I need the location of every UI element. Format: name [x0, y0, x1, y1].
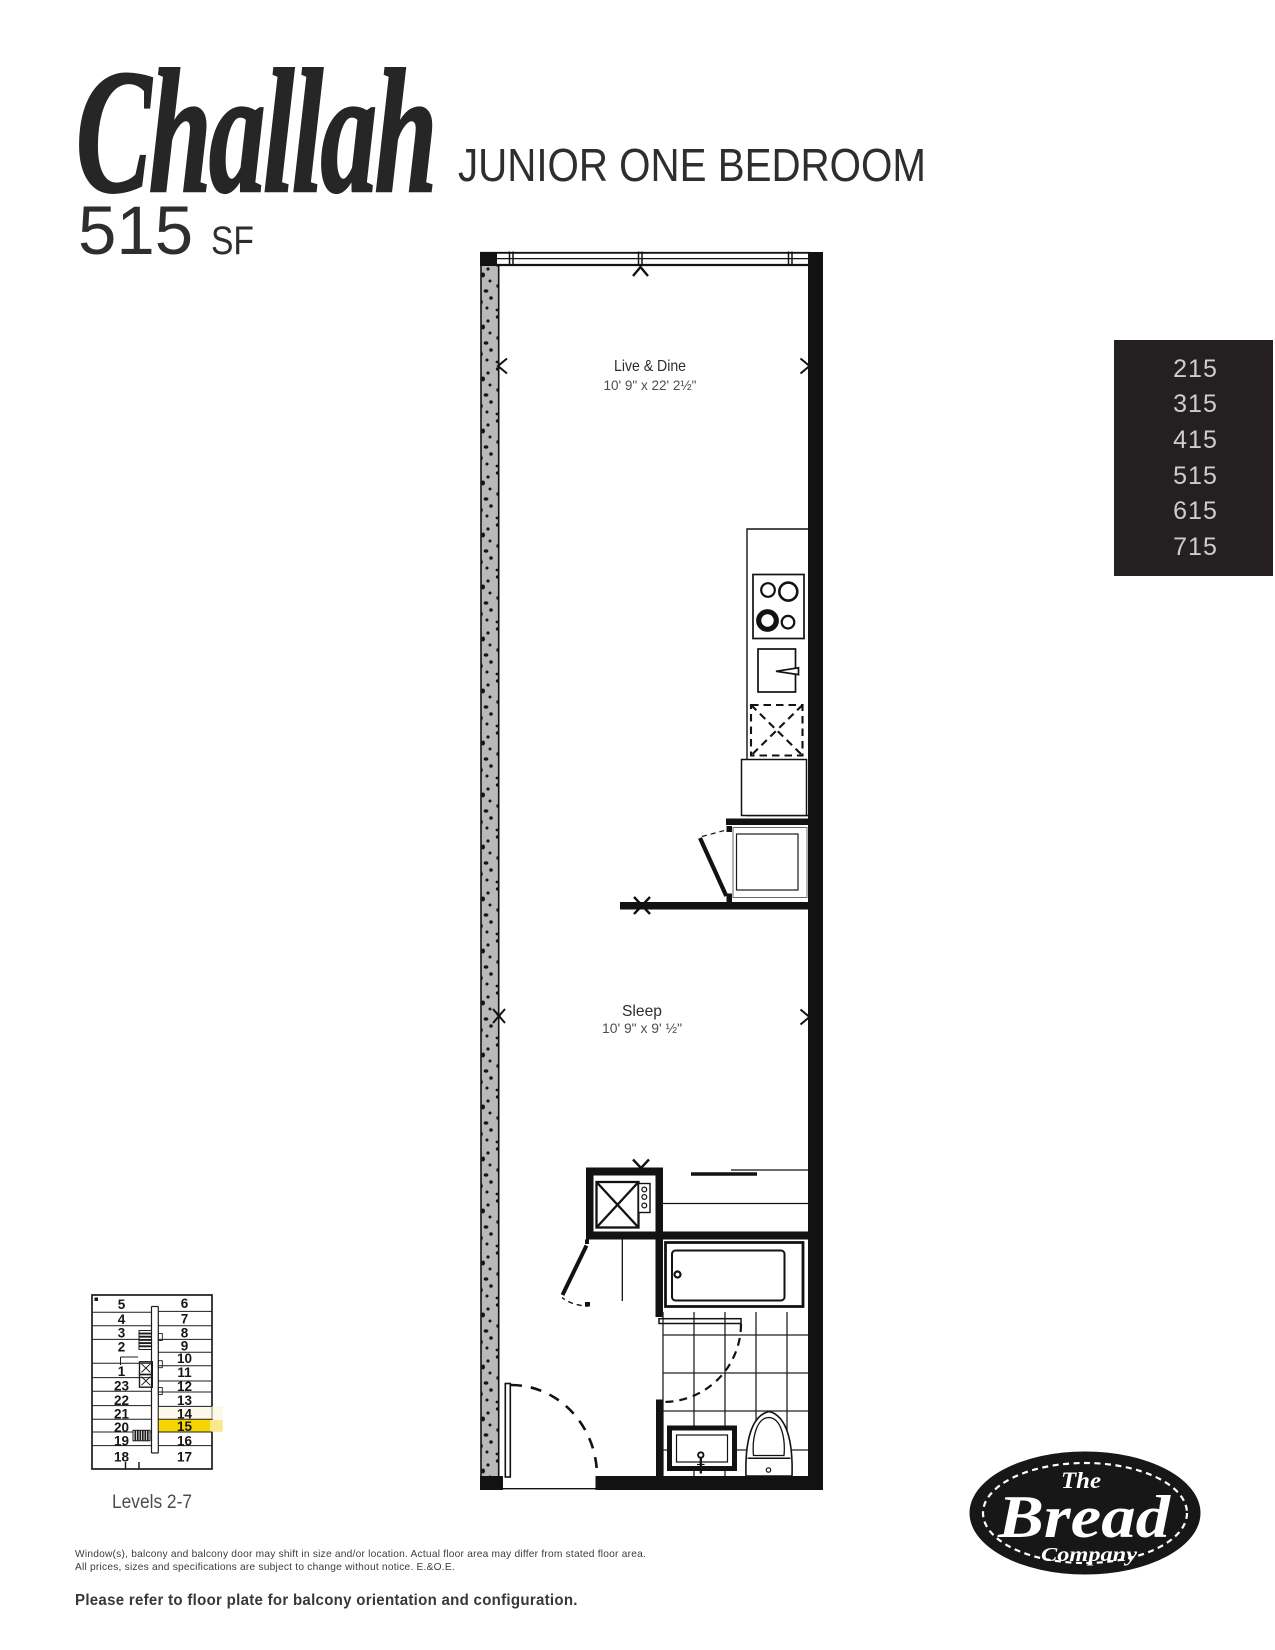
svg-text:Company: Company: [1041, 1544, 1137, 1566]
svg-text:Bread: Bread: [997, 1484, 1171, 1550]
svg-text:19: 19: [114, 1434, 129, 1449]
svg-text:15: 15: [177, 1419, 193, 1434]
svg-text:10' 9" x 22' 2½": 10' 9" x 22' 2½": [604, 377, 697, 393]
svg-text:10' 9" x 9' ½": 10' 9" x 9' ½": [602, 1020, 682, 1036]
svg-text:Live & Dine: Live & Dine: [614, 358, 686, 375]
svg-text:18: 18: [114, 1450, 130, 1465]
svg-text:23: 23: [114, 1378, 130, 1393]
svg-text:5: 5: [118, 1297, 126, 1312]
svg-text:2: 2: [118, 1339, 126, 1354]
svg-text:Levels 2-7: Levels 2-7: [112, 1492, 192, 1513]
svg-text:11: 11: [177, 1365, 192, 1380]
svg-text:1: 1: [118, 1364, 126, 1379]
svg-text:17: 17: [177, 1450, 192, 1465]
svg-text:7: 7: [181, 1312, 189, 1327]
svg-text:6: 6: [181, 1296, 189, 1311]
svg-text:16: 16: [177, 1434, 193, 1449]
svg-text:Sleep: Sleep: [622, 1003, 662, 1020]
